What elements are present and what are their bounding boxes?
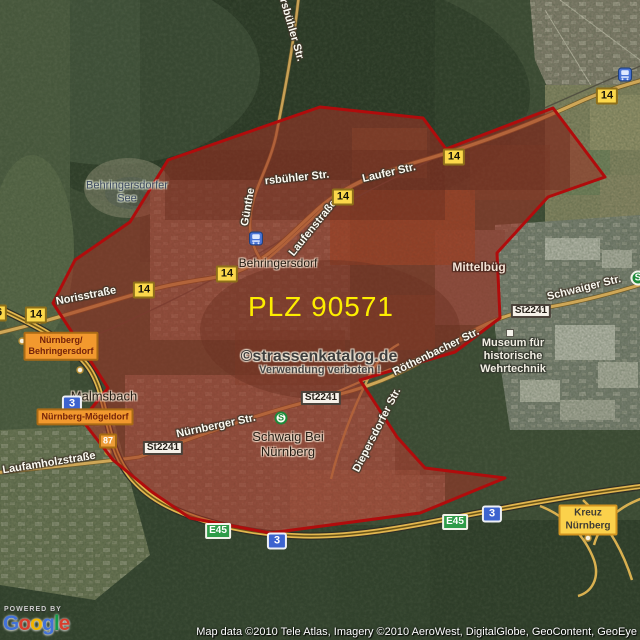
google-logo[interactable]: Google [3,612,69,636]
google-logo-letter: o [18,612,30,635]
junction-ring [585,535,591,541]
google-logo-letter: o [30,612,42,635]
google-logo-letter: e [59,612,70,635]
junction-ring [77,367,83,373]
map-data-attribution: Map data ©2010 Tele Atlas, Imagery ©2010… [196,626,637,638]
google-logo-letter: g [42,612,54,635]
junction-ring [19,338,25,344]
terrain-canvas [0,0,640,640]
satellite-map[interactable]: Behringersdorfer See Behringersdorf Mitt… [0,0,640,640]
google-logo-letter: G [3,612,18,635]
